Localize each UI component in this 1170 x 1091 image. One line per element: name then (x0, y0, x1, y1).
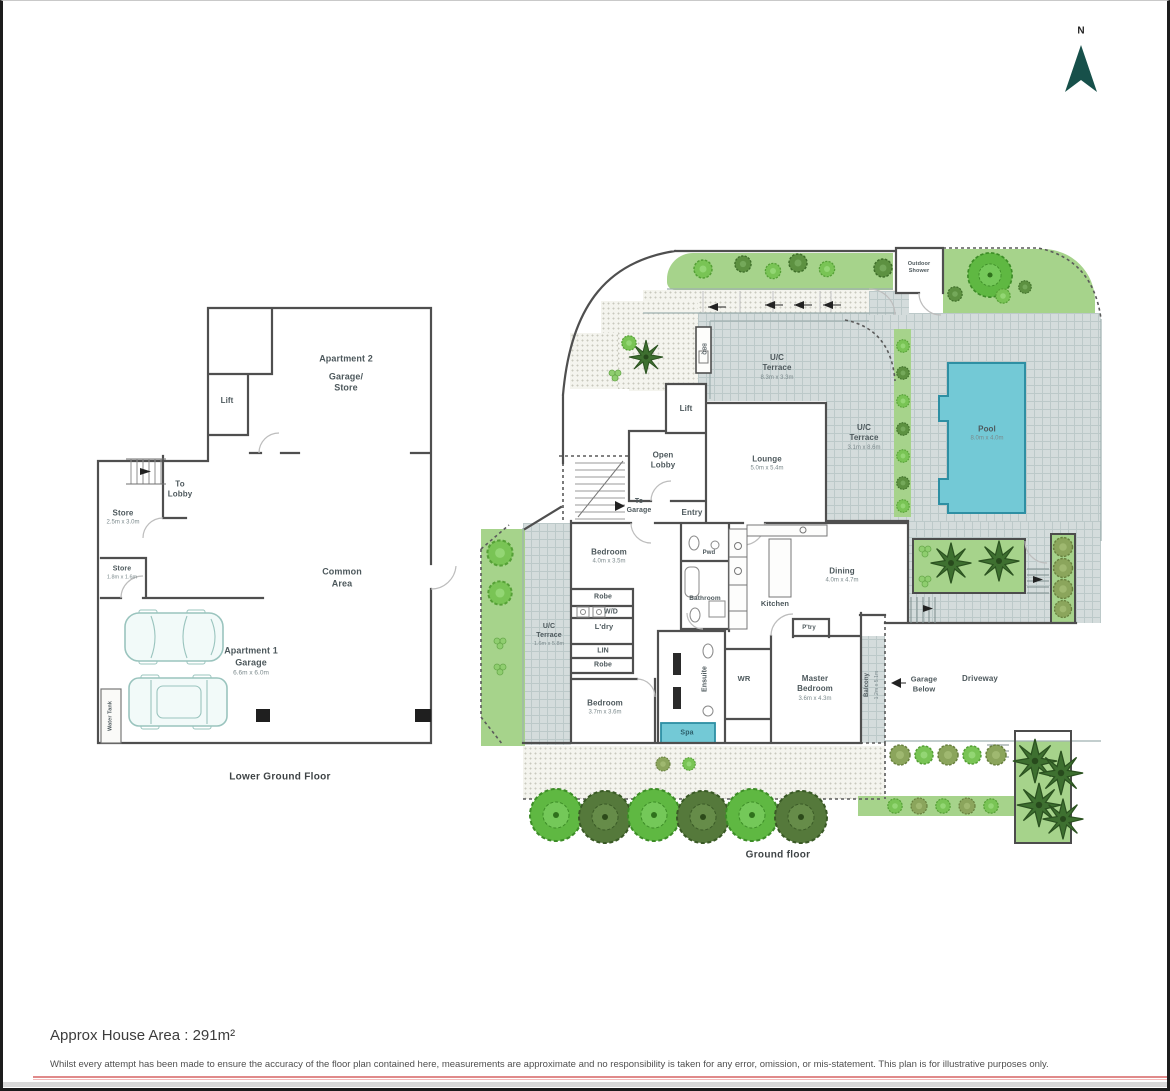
room-label-wd: W/D (604, 607, 618, 616)
room-label-apartment2: Apartment 2Garage/Store (319, 353, 373, 394)
room-label-ldry: L'dry (595, 622, 614, 632)
room-label-lift-gf: Lift (680, 404, 693, 414)
gf-stairs-icon (575, 461, 625, 519)
room-label-common-area: CommonArea (322, 566, 362, 589)
room-label-store1: Store2.5m x 3.0m (106, 508, 139, 527)
north-arrow-icon (1065, 45, 1097, 92)
ground-floor-plan (481, 248, 1101, 843)
floorplan-graphics (3, 1, 1170, 1091)
room-label-bedroom2: Bedroom3.7m x 3.6m (587, 698, 623, 717)
room-label-lift-lg: Lift (221, 396, 234, 406)
room-label-uc-terrace-top: U/CTerrace8.3m x 3.3m (760, 353, 793, 383)
room-label-to-lobby: ToLobby (168, 480, 193, 501)
room-label-outdoor-shower: OutdoorShower (908, 261, 930, 275)
caption-lower-ground-floor: Lower Ground Floor (229, 771, 331, 784)
room-label-bathroom: Bathroom (689, 595, 721, 603)
north-label: N (1077, 26, 1084, 37)
room-label-bedroom1: Bedroom4.0m x 3.5m (591, 547, 627, 566)
lg-garage-pier-1 (256, 709, 270, 722)
car-icon (125, 610, 223, 664)
room-label-store2: Store1.8m x 1.6m (107, 564, 137, 581)
kitchen-icons (729, 525, 827, 629)
room-label-ptry: P'try (802, 625, 816, 633)
footer-divider-line-shadow (33, 1079, 1169, 1080)
room-label-water-tank: Water Tank (107, 701, 114, 731)
room-label-balcony: Balcony (864, 673, 872, 697)
room-label-garage-below: GarageBelow (911, 674, 937, 694)
lg-garage-pier-2 (415, 709, 431, 722)
footer-divider-line (33, 1076, 1169, 1078)
to-garage-arrow-icon (615, 501, 625, 511)
room-label-entry: Entry (682, 508, 703, 518)
garage-below-arrow-icon (891, 678, 906, 688)
approx-house-area: Approx House Area : 291m² (50, 1027, 235, 1044)
lg-stairs-icon (126, 459, 166, 484)
room-label-master-bedroom: MasterBedroom3.6m x 4.3m (797, 674, 833, 704)
room-label-ensuite: Ensuite (700, 666, 709, 692)
lg-door-arcs (121, 433, 456, 598)
room-label-apartment1-garage: Apartment 1Garage6.6m x 6.0m (224, 646, 278, 679)
room-label-lin: LIN (597, 646, 609, 655)
room-label-spa: Spa (680, 728, 693, 737)
walkway-lines (703, 291, 831, 312)
room-label-driveway: Driveway (962, 674, 998, 684)
room-label-wr: WR (738, 674, 751, 684)
room-label-dining: Dining4.0m x 4.7m (825, 566, 858, 585)
ensuite-vanity-icons (673, 653, 681, 709)
garden-stairs-icon (911, 569, 1049, 757)
room-label-to-garage: ToGarage (627, 497, 652, 515)
room-label-balcony-dims: 1.2m x 5.1m (874, 671, 881, 700)
room-label-pool: Pool8.0m x 4.0m (970, 424, 1003, 443)
room-label-lounge: Lounge5.0m x 5.4m (750, 454, 783, 473)
page-bottom-band (3, 1082, 1167, 1087)
room-label-robe2: Robe (594, 660, 612, 669)
disclaimer-text: Whilst every attempt has been made to en… (50, 1059, 1049, 1070)
room-label-pwd: Pwd (703, 550, 716, 558)
car-icon-2 (129, 675, 227, 729)
room-label-kitchen: Kitchen (761, 599, 789, 609)
walkway-arrow-icons (708, 301, 841, 311)
floorplan-page: Apartment 2Garage/Store Lift ToLobby Sto… (0, 0, 1170, 1091)
room-label-bbq: BBQ (700, 343, 707, 354)
room-label-robe1: Robe (594, 592, 612, 601)
caption-ground-floor: Ground floor (746, 849, 811, 862)
room-label-uc-terrace-left: U/CTerrace1.6m x 5.8m (534, 622, 564, 648)
room-label-uc-terrace-right: U/CTerrace3.1m x 8.6m (847, 423, 880, 453)
room-label-open-lobby: OpenLobby (651, 451, 676, 472)
